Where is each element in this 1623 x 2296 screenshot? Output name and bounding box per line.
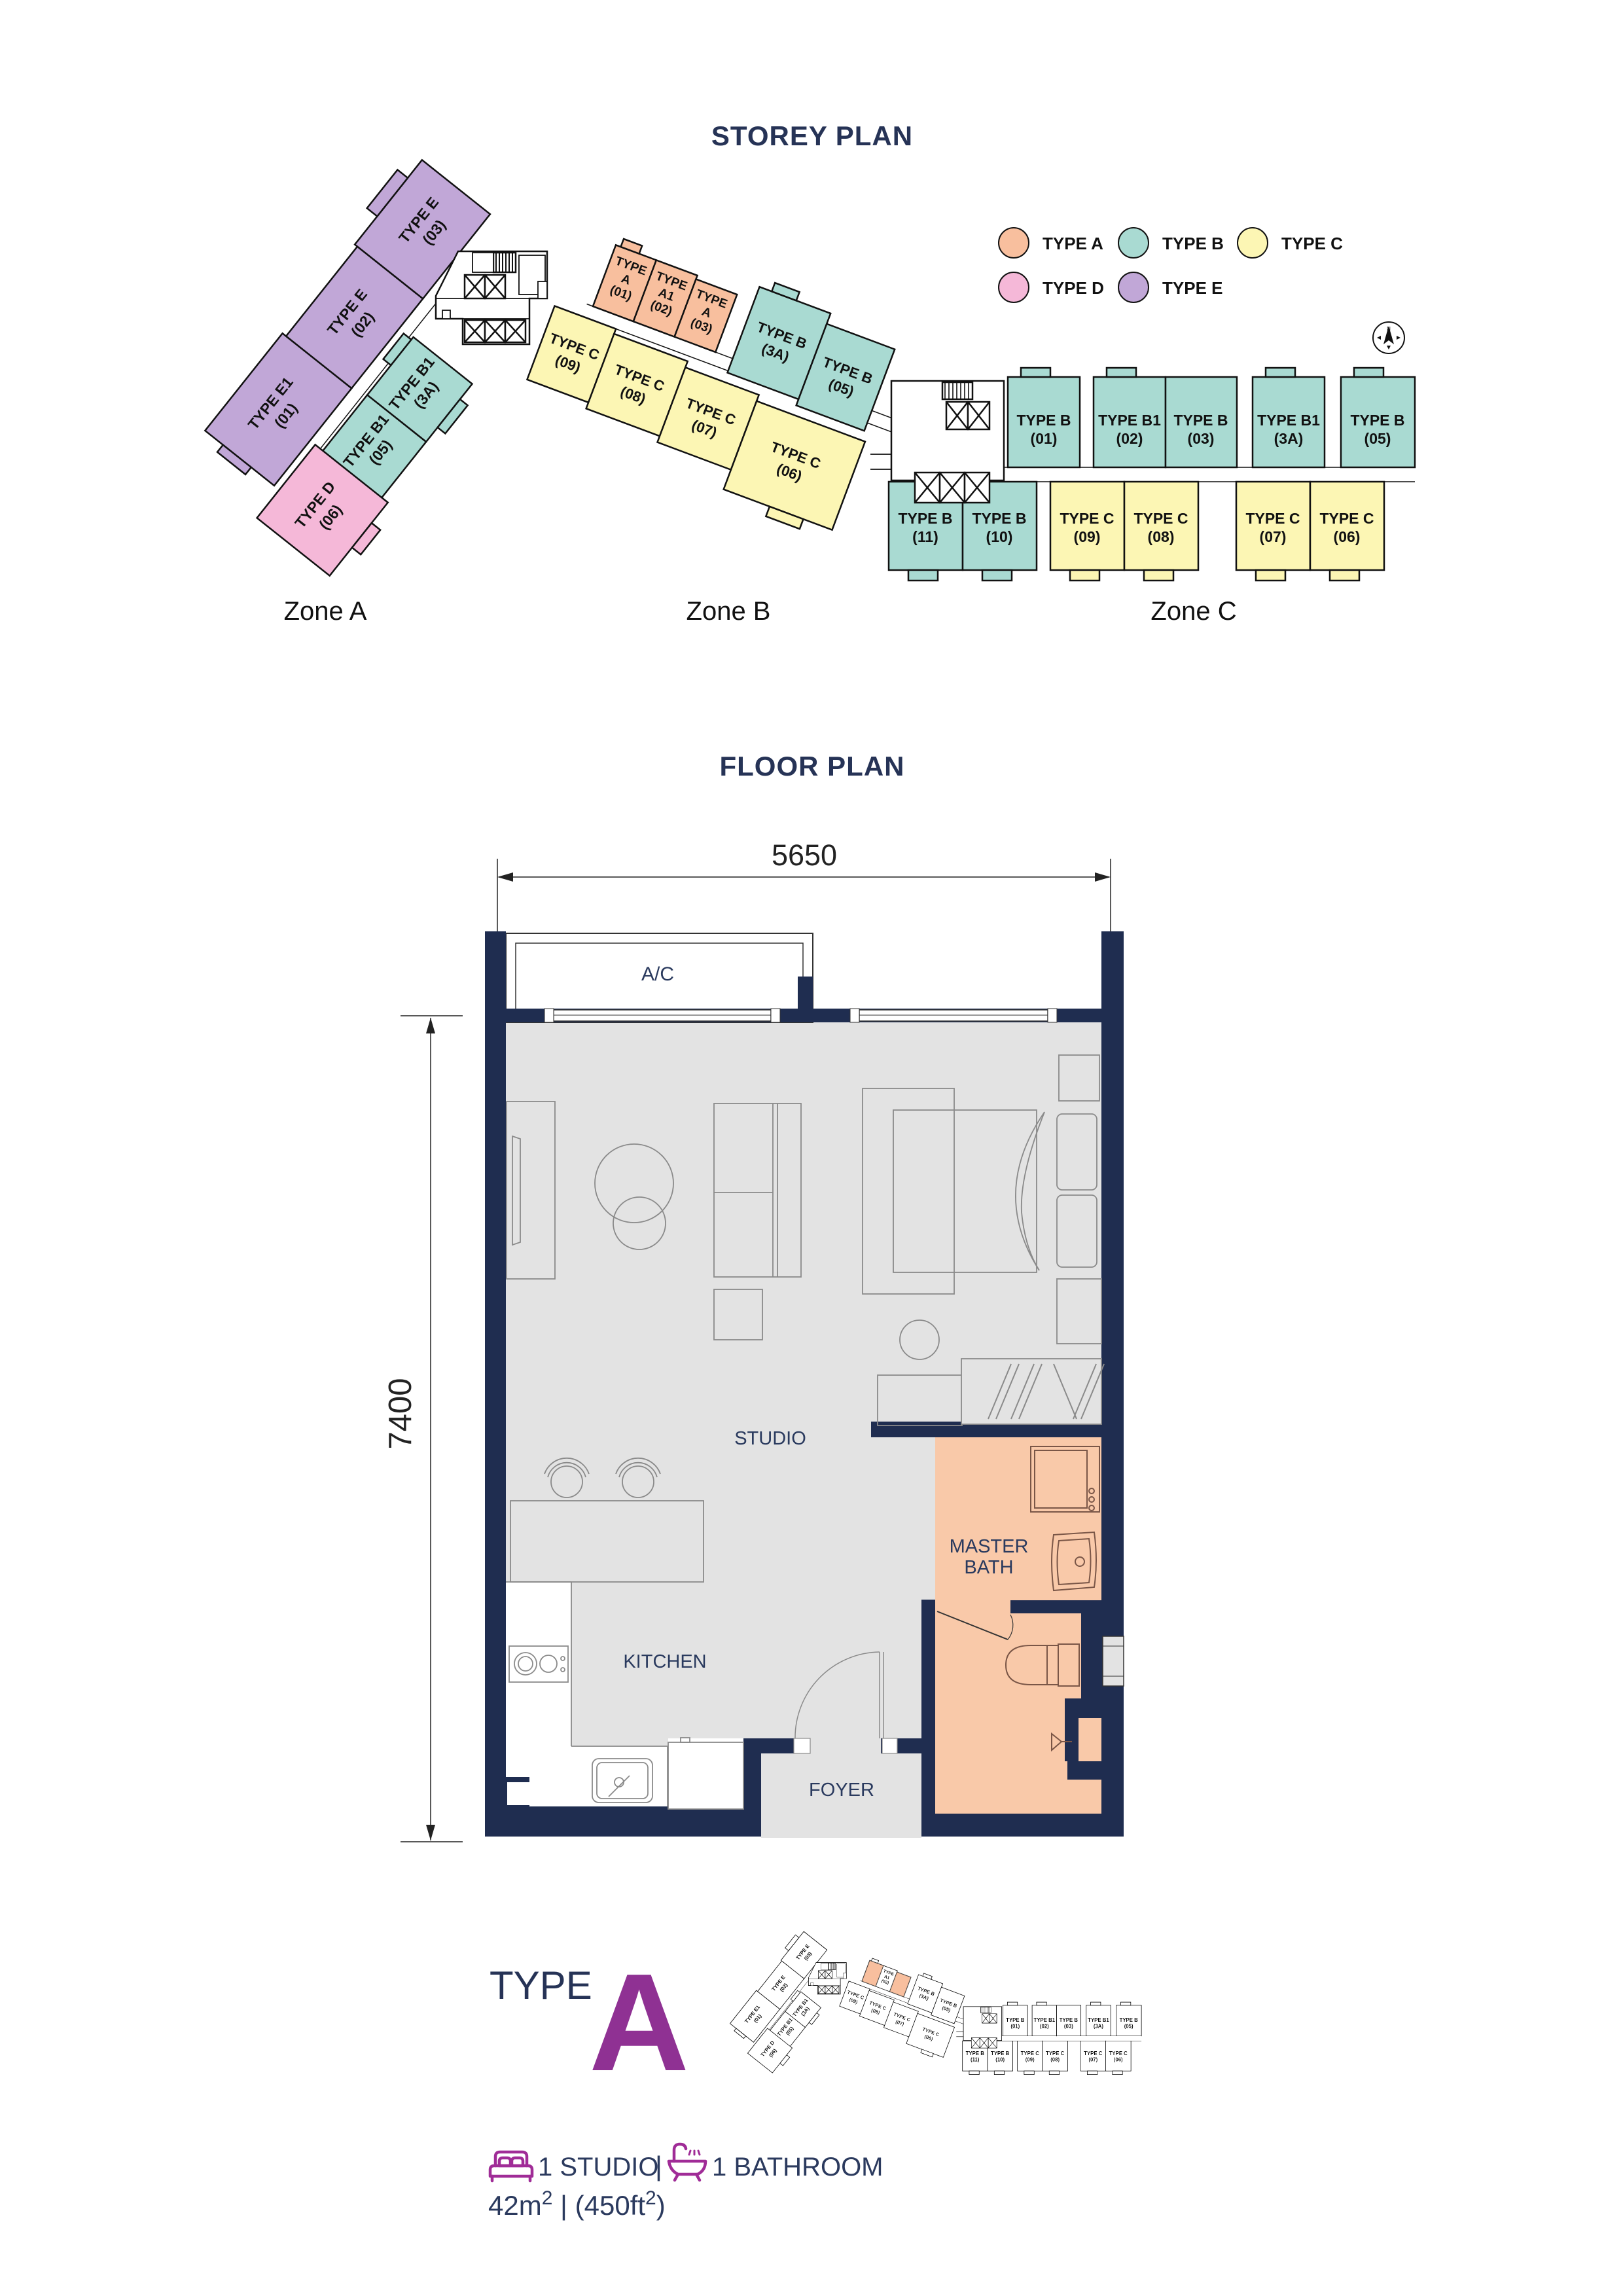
svg-text:(06): (06) bbox=[1334, 528, 1361, 545]
svg-text:TYPE B: TYPE B bbox=[1173, 412, 1228, 429]
svg-text:TYPE B1: TYPE B1 bbox=[1257, 412, 1320, 429]
svg-text:(10): (10) bbox=[986, 528, 1013, 545]
svg-text:TYPE B: TYPE B bbox=[1162, 234, 1224, 253]
svg-text:TYPE B1: TYPE B1 bbox=[1098, 412, 1161, 429]
svg-text:TYPE B: TYPE B bbox=[972, 510, 1026, 527]
svg-text:TYPE C: TYPE C bbox=[1319, 510, 1374, 527]
svg-text:(02): (02) bbox=[1116, 430, 1143, 447]
svg-text:TYPE C: TYPE C bbox=[1281, 234, 1343, 253]
svg-text:42m2 | (450ft2): 42m2 | (450ft2) bbox=[488, 2187, 666, 2221]
svg-text:TYPE E: TYPE E bbox=[1162, 278, 1222, 298]
svg-text:N: N bbox=[1387, 326, 1391, 332]
svg-text:FLOOR PLAN: FLOOR PLAN bbox=[720, 751, 905, 781]
svg-text:(08): (08) bbox=[1148, 528, 1175, 545]
svg-text:(03): (03) bbox=[1188, 430, 1215, 447]
svg-text:STOREY PLAN: STOREY PLAN bbox=[711, 120, 913, 151]
svg-text:MASTER: MASTER bbox=[950, 1536, 1029, 1557]
svg-text:1 BATHROOM: 1 BATHROOM bbox=[712, 2153, 883, 2181]
svg-text:(05): (05) bbox=[1364, 430, 1391, 447]
svg-text:5650: 5650 bbox=[772, 838, 837, 872]
svg-text:TYPE B: TYPE B bbox=[1350, 412, 1404, 429]
svg-text:7400: 7400 bbox=[383, 1378, 418, 1449]
svg-text:FOYER: FOYER bbox=[809, 1780, 874, 1801]
svg-text:(3A): (3A) bbox=[1274, 430, 1304, 447]
svg-text:(01): (01) bbox=[1031, 430, 1058, 447]
svg-text:STUDIO: STUDIO bbox=[734, 1428, 806, 1449]
svg-text:Zone B: Zone B bbox=[687, 597, 771, 626]
svg-text:A: A bbox=[589, 1945, 689, 2100]
svg-text:TYPE D: TYPE D bbox=[1043, 278, 1104, 298]
svg-text:A/C: A/C bbox=[641, 963, 674, 985]
svg-text:1 STUDIO: 1 STUDIO bbox=[538, 2153, 658, 2181]
svg-text:Zone C: Zone C bbox=[1150, 597, 1236, 626]
svg-text:TYPE A: TYPE A bbox=[1043, 234, 1103, 253]
svg-text:KITCHEN: KITCHEN bbox=[623, 1651, 706, 1672]
svg-text:(07): (07) bbox=[1260, 528, 1287, 545]
svg-text:TYPE C: TYPE C bbox=[1060, 510, 1114, 527]
svg-text:TYPE: TYPE bbox=[490, 1964, 592, 2007]
svg-text:BATH: BATH bbox=[964, 1557, 1013, 1578]
svg-text:Zone A: Zone A bbox=[284, 597, 367, 626]
svg-text:(09): (09) bbox=[1074, 528, 1101, 545]
svg-text:|: | bbox=[655, 2151, 662, 2181]
svg-text:TYPE B: TYPE B bbox=[1016, 412, 1071, 429]
svg-text:(11): (11) bbox=[912, 528, 938, 545]
svg-text:TYPE B: TYPE B bbox=[898, 510, 952, 527]
svg-text:TYPE C: TYPE C bbox=[1133, 510, 1188, 527]
svg-text:TYPE C: TYPE C bbox=[1245, 510, 1300, 527]
